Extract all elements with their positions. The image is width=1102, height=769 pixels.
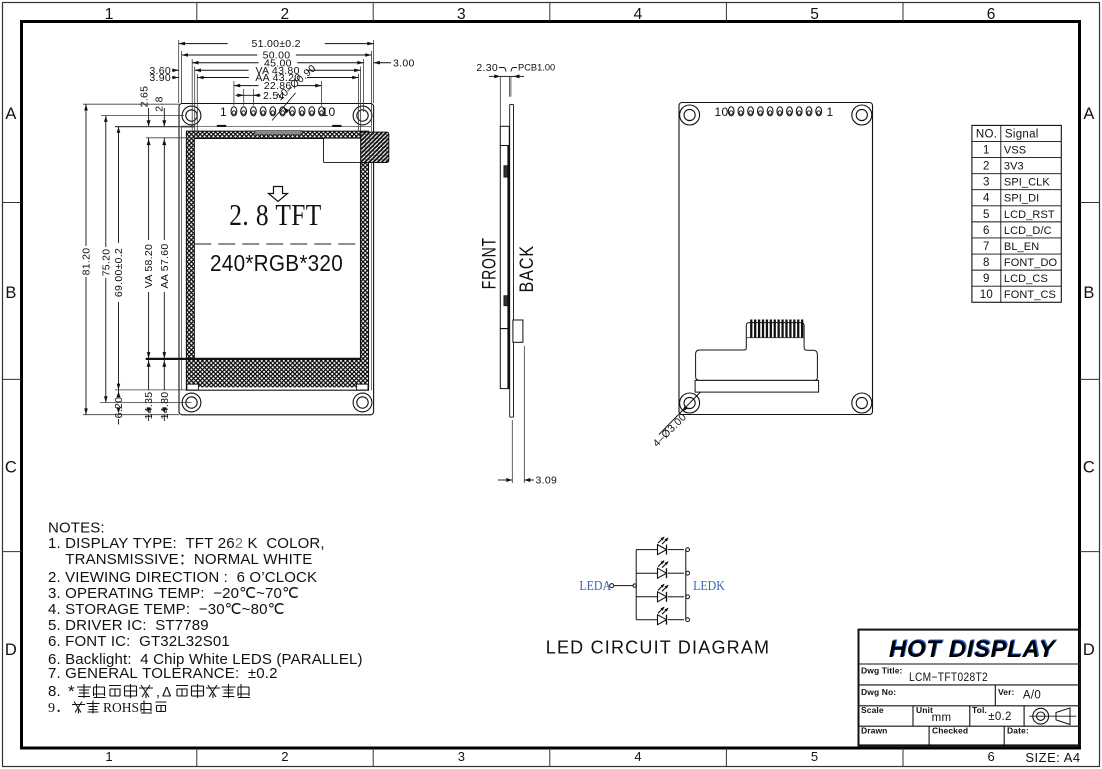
svg-text:VSS: VSS bbox=[1004, 144, 1026, 156]
svg-text:BL_EN: BL_EN bbox=[1004, 241, 1039, 253]
svg-text:2. 8 TFT: 2. 8 TFT bbox=[229, 199, 321, 233]
svg-text:3.00: 3.00 bbox=[393, 57, 415, 69]
svg-text:75.20: 75.20 bbox=[100, 249, 112, 277]
svg-text:C: C bbox=[1083, 459, 1095, 477]
svg-text:LEDA: LEDA bbox=[579, 577, 611, 593]
svg-text:7. GENERAL TOLERANCE: ±0.2: 7. GENERAL TOLERANCE: ±0.2 bbox=[48, 665, 278, 682]
svg-text:14.80: 14.80 bbox=[159, 392, 171, 420]
svg-text:2: 2 bbox=[983, 161, 990, 173]
svg-text:8: 8 bbox=[983, 257, 990, 269]
svg-text:Tol.: Tol. bbox=[972, 705, 987, 715]
svg-text:TRANSMISSIVE：NORMAL WHITE: TRANSMISSIVE：NORMAL WHITE bbox=[48, 551, 312, 568]
svg-text:6. FONT IC: GT32L32S01: 6. FONT IC: GT32L32S01 bbox=[48, 633, 230, 650]
svg-text:PCB1.00: PCB1.00 bbox=[518, 63, 555, 73]
svg-text:NO.: NO. bbox=[976, 128, 997, 140]
svg-text:2. VIEWING DIRECTION : 6 O’CL: 2. VIEWING DIRECTION : 6 O’CLOCK bbox=[48, 569, 317, 586]
svg-text:3.90: 3.90 bbox=[149, 72, 171, 84]
svg-text:HOT DISPLAY: HOT DISPLAY bbox=[889, 636, 1057, 663]
svg-text:3: 3 bbox=[457, 6, 466, 23]
svg-text:Δ: Δ bbox=[162, 684, 172, 700]
svg-text:LCM−TFT028T2: LCM−TFT028T2 bbox=[909, 671, 988, 684]
svg-text:Checked: Checked bbox=[932, 726, 968, 736]
svg-text:7: 7 bbox=[983, 241, 990, 253]
svg-text:10: 10 bbox=[715, 105, 729, 119]
svg-text:240*RGB*320: 240*RGB*320 bbox=[210, 250, 343, 276]
svg-text:10: 10 bbox=[980, 289, 993, 301]
svg-text:1: 1 bbox=[827, 105, 834, 119]
svg-text:D: D bbox=[1083, 641, 1095, 659]
svg-text:6: 6 bbox=[987, 6, 996, 23]
svg-text:5. DRIVER IC: ST7789: 5. DRIVER IC: ST7789 bbox=[48, 617, 209, 634]
svg-text:3. OPERATING TEMP: −20℃~70℃: 3. OPERATING TEMP: −20℃~70℃ bbox=[48, 585, 299, 602]
svg-text:LCD_D/C: LCD_D/C bbox=[1004, 225, 1052, 237]
svg-text:LEDK: LEDK bbox=[693, 577, 725, 593]
svg-text:A: A bbox=[5, 105, 16, 123]
svg-text:Ver:: Ver: bbox=[998, 687, 1015, 697]
svg-text:2.65: 2.65 bbox=[139, 86, 151, 108]
svg-text:,: , bbox=[156, 684, 160, 700]
svg-text:2: 2 bbox=[281, 6, 290, 23]
svg-text:5: 5 bbox=[811, 749, 819, 764]
svg-text:Unit: Unit bbox=[916, 705, 933, 715]
svg-text:Signal: Signal bbox=[1005, 128, 1039, 140]
svg-text:4: 4 bbox=[634, 6, 643, 23]
svg-text:Scale: Scale bbox=[861, 705, 884, 715]
svg-text:1: 1 bbox=[220, 105, 227, 119]
svg-text:81.20: 81.20 bbox=[81, 248, 93, 276]
svg-text:4: 4 bbox=[983, 193, 990, 205]
svg-text:2: 2 bbox=[281, 749, 289, 764]
svg-text:SPI_CLK: SPI_CLK bbox=[1004, 177, 1051, 189]
svg-text:BACK: BACK bbox=[516, 245, 538, 292]
svg-text:NOTES:: NOTES: bbox=[48, 520, 105, 537]
svg-text:FONT_DO: FONT_DO bbox=[1004, 257, 1058, 269]
svg-text:14.35: 14.35 bbox=[143, 392, 155, 420]
svg-text:3: 3 bbox=[983, 177, 990, 189]
svg-text:AA 57.60: AA 57.60 bbox=[159, 243, 171, 288]
svg-text:4: 4 bbox=[634, 749, 642, 764]
svg-text:51.00±0.2: 51.00±0.2 bbox=[251, 38, 300, 50]
svg-text:C: C bbox=[5, 459, 17, 477]
svg-text:2.30: 2.30 bbox=[476, 62, 498, 74]
svg-text:SPI_DI: SPI_DI bbox=[1004, 193, 1039, 205]
svg-text:D: D bbox=[5, 641, 17, 659]
svg-text:9．: 9． bbox=[48, 701, 70, 716]
svg-text:B: B bbox=[5, 284, 16, 302]
svg-text:*: * bbox=[68, 682, 75, 701]
svg-text:mm: mm bbox=[932, 712, 952, 724]
svg-text:FRONT: FRONT bbox=[478, 237, 500, 289]
svg-text:ROHS: ROHS bbox=[103, 700, 139, 715]
svg-text:5: 5 bbox=[810, 6, 819, 23]
svg-text:±0.2: ±0.2 bbox=[988, 711, 1012, 723]
svg-text:FONT_CS: FONT_CS bbox=[1004, 289, 1056, 301]
svg-text:69.00±0.2: 69.00±0.2 bbox=[113, 248, 125, 297]
svg-text:5: 5 bbox=[983, 209, 990, 221]
svg-text:6.20: 6.20 bbox=[113, 397, 125, 419]
svg-text:3V3: 3V3 bbox=[1004, 161, 1024, 173]
svg-text:VA 58.20: VA 58.20 bbox=[143, 244, 155, 288]
svg-text:6: 6 bbox=[983, 225, 990, 237]
svg-text:1: 1 bbox=[105, 749, 113, 764]
svg-text:1. DISPLAY TYPE: TFT 262 K C: 1. DISPLAY TYPE: TFT 262 K COLOR, bbox=[48, 535, 325, 552]
svg-text:1: 1 bbox=[983, 144, 990, 156]
svg-text:B: B bbox=[1083, 284, 1094, 302]
svg-text:3: 3 bbox=[458, 749, 466, 764]
svg-text:SIZE: A4: SIZE: A4 bbox=[1025, 750, 1080, 765]
svg-text:10: 10 bbox=[322, 105, 336, 119]
svg-text:1: 1 bbox=[105, 6, 114, 23]
svg-text:LCD_RST: LCD_RST bbox=[1004, 209, 1055, 221]
svg-text:LED CIRCUIT DIAGRAM: LED CIRCUIT DIAGRAM bbox=[546, 638, 771, 658]
svg-text:A/0: A/0 bbox=[1023, 690, 1041, 702]
svg-text:3.09: 3.09 bbox=[536, 475, 558, 487]
svg-text:8.: 8. bbox=[48, 683, 61, 700]
svg-text:Dwg Title:: Dwg Title: bbox=[861, 666, 903, 676]
svg-text:Date:: Date: bbox=[1007, 726, 1029, 736]
svg-text:4. STORAGE TEMP: −30℃~80℃: 4. STORAGE TEMP: −30℃~80℃ bbox=[48, 601, 285, 618]
svg-text:Drawn: Drawn bbox=[861, 726, 887, 736]
svg-text:Dwg No:: Dwg No: bbox=[861, 687, 896, 697]
svg-text:LCD_CS: LCD_CS bbox=[1004, 273, 1048, 285]
svg-text:6: 6 bbox=[987, 749, 995, 764]
svg-text:9: 9 bbox=[983, 273, 990, 285]
svg-text:A: A bbox=[1083, 105, 1094, 123]
